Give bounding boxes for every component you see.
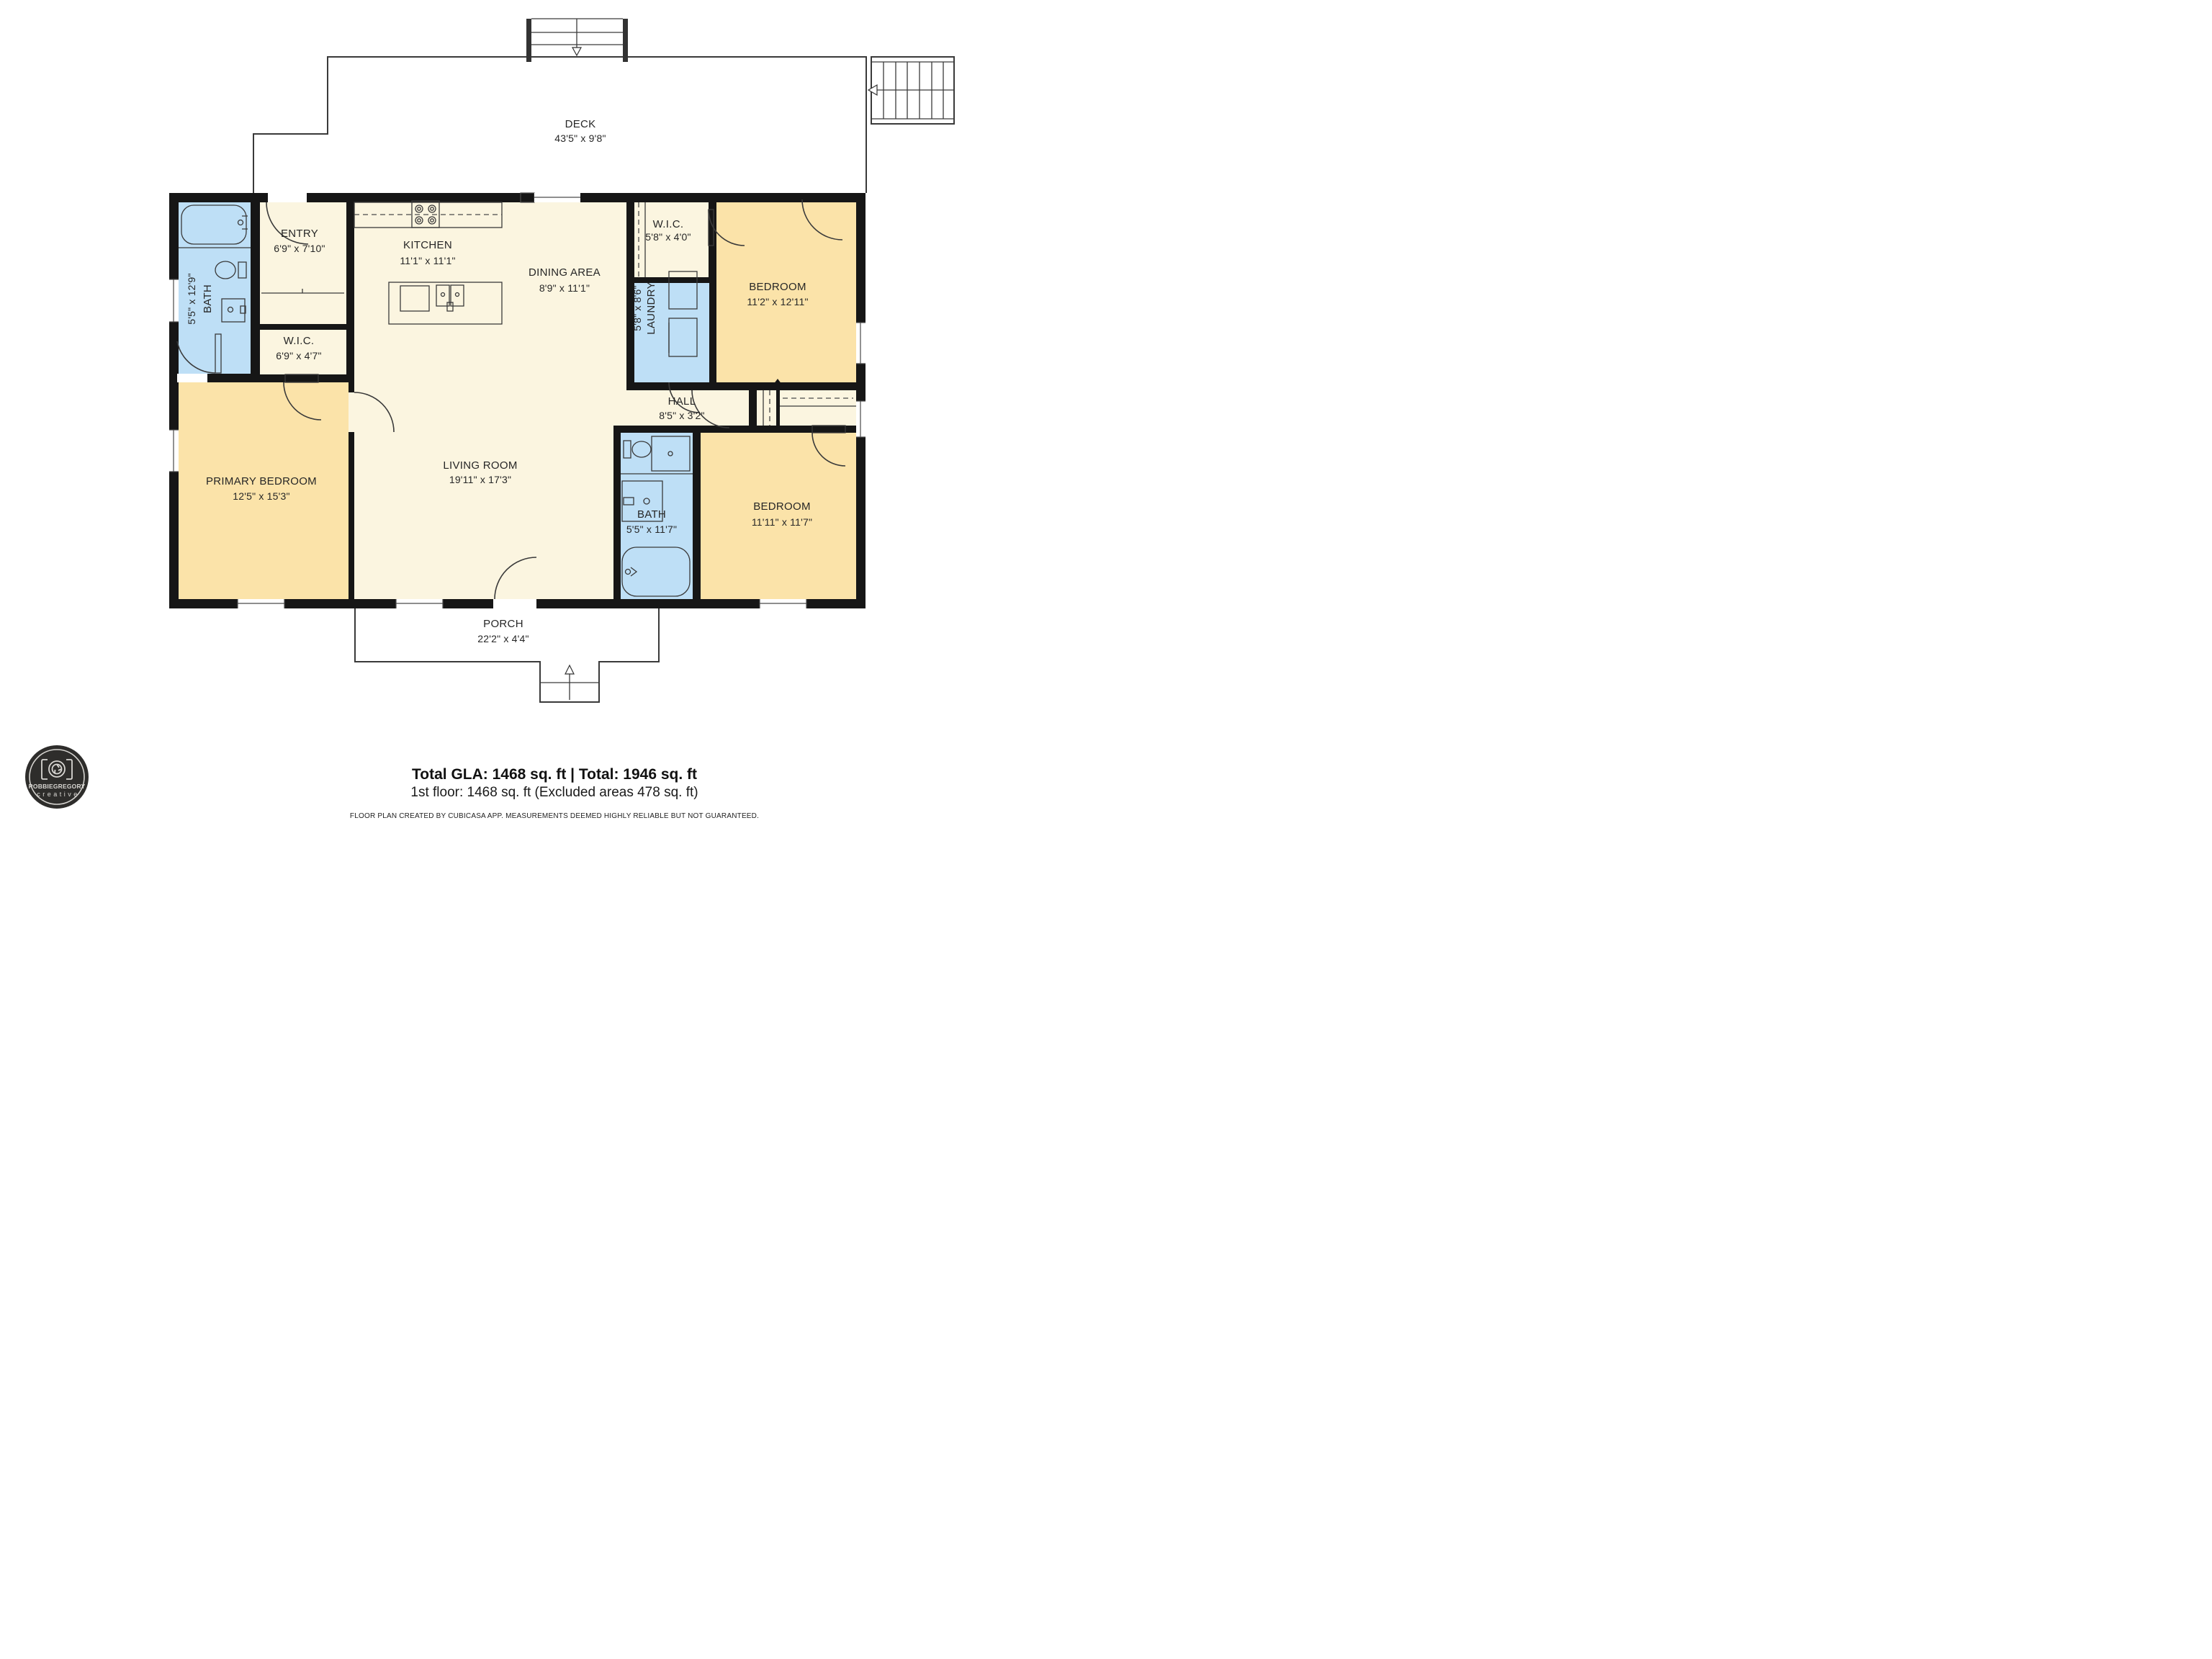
dining-label: DINING AREA <box>529 266 601 279</box>
porch-dims: 22'2" x 4'4" <box>477 633 529 644</box>
porch-outline: PORCH 22'2" x 4'4" <box>355 608 659 702</box>
logo: ROBBIEGREGORY creative <box>25 745 89 809</box>
entry-dims: 6'9" x 7'10" <box>274 243 325 254</box>
bath-bottom-dims: 5'5" x 11'7" <box>626 523 677 535</box>
window-left-primary <box>169 430 179 472</box>
bath-bottom-label: BATH <box>637 508 666 521</box>
living-label: LIVING ROOM <box>443 459 517 472</box>
footer-total: Total GLA: 1468 sq. ft | Total: 1946 sq.… <box>412 766 697 783</box>
window-top-entry-door-gap <box>268 193 307 202</box>
hall-label: HALL <box>668 395 696 408</box>
bedroom-top-dims: 11'2" x 12'11" <box>747 296 808 307</box>
living-dims: 19'11" x 17'3" <box>449 474 511 485</box>
deck-outline: DECK 43'5" x 9'8" <box>253 19 954 193</box>
primary-dims: 12'5" x 15'3" <box>233 490 289 502</box>
deck-stairs <box>868 57 954 124</box>
logo-brand: ROBBIEGREGORY <box>29 783 86 790</box>
window-bottom-living <box>396 599 443 608</box>
deck-dims: 43'5" x 9'8" <box>554 132 606 144</box>
bedroom-bottom-dims: 11'11" x 11'7" <box>752 516 812 528</box>
deck-label: DECK <box>565 118 596 130</box>
kitchen-label: KITCHEN <box>403 239 452 251</box>
porch-door-gap <box>493 599 536 608</box>
floor-plan-page: DECK 43'5" x 9'8" PORCH 22'2" x 4'4" <box>0 0 1106 829</box>
window-bottom-bedroom <box>760 599 806 608</box>
room-entry <box>260 202 346 324</box>
bedroom-top-label: BEDROOM <box>749 281 806 293</box>
closet-hall-left <box>757 390 776 426</box>
bath-left-label: BATH <box>202 284 214 313</box>
porch-label: PORCH <box>483 618 523 630</box>
footer: Total GLA: 1468 sq. ft | Total: 1946 sq.… <box>350 766 759 820</box>
deck-steps <box>526 19 628 62</box>
window-bottom-primary <box>238 599 284 608</box>
kitchen-dims: 11'1" x 11'1" <box>400 255 455 266</box>
wic-left-label: W.I.C. <box>284 335 315 347</box>
wic-top-label: W.I.C. <box>653 218 684 230</box>
deck-door-gap <box>534 193 580 202</box>
laundry-label: LAUNDRY <box>645 282 657 335</box>
room-kitchen-dining <box>354 202 626 390</box>
laundry-dims: 5'8" x 8'6" <box>631 285 643 331</box>
window-right-bedroom-top <box>856 323 866 364</box>
bath-left-door-slab <box>177 374 207 382</box>
arrow-down-icon <box>572 48 581 55</box>
dining-dims: 8'9" x 11'1" <box>539 282 590 294</box>
wic-left-dims: 6'9" x 4'7" <box>276 350 321 361</box>
entry-label: ENTRY <box>281 228 318 240</box>
footer-disclaimer: FLOOR PLAN CREATED BY CUBICASA APP. MEAS… <box>350 812 759 820</box>
primary-door-gap <box>349 392 354 432</box>
bedroom-bottom-label: BEDROOM <box>753 500 811 513</box>
primary-label: PRIMARY BEDROOM <box>206 475 317 487</box>
wic-top-dims: 5'8" x 4'0" <box>645 231 691 243</box>
footer-floor: 1st floor: 1468 sq. ft (Excluded areas 4… <box>410 785 698 800</box>
bath-left-dims: 5'5" x 12'9" <box>186 273 197 324</box>
logo-tagline: creative <box>37 791 80 798</box>
floor-plan-svg: DECK 43'5" x 9'8" PORCH 22'2" x 4'4" <box>0 0 1106 829</box>
window-left-bath <box>169 279 179 322</box>
window-right-closet <box>856 401 866 437</box>
hall-dims: 8'5" x 3'2" <box>659 410 704 421</box>
closet-hall-right <box>780 390 856 426</box>
